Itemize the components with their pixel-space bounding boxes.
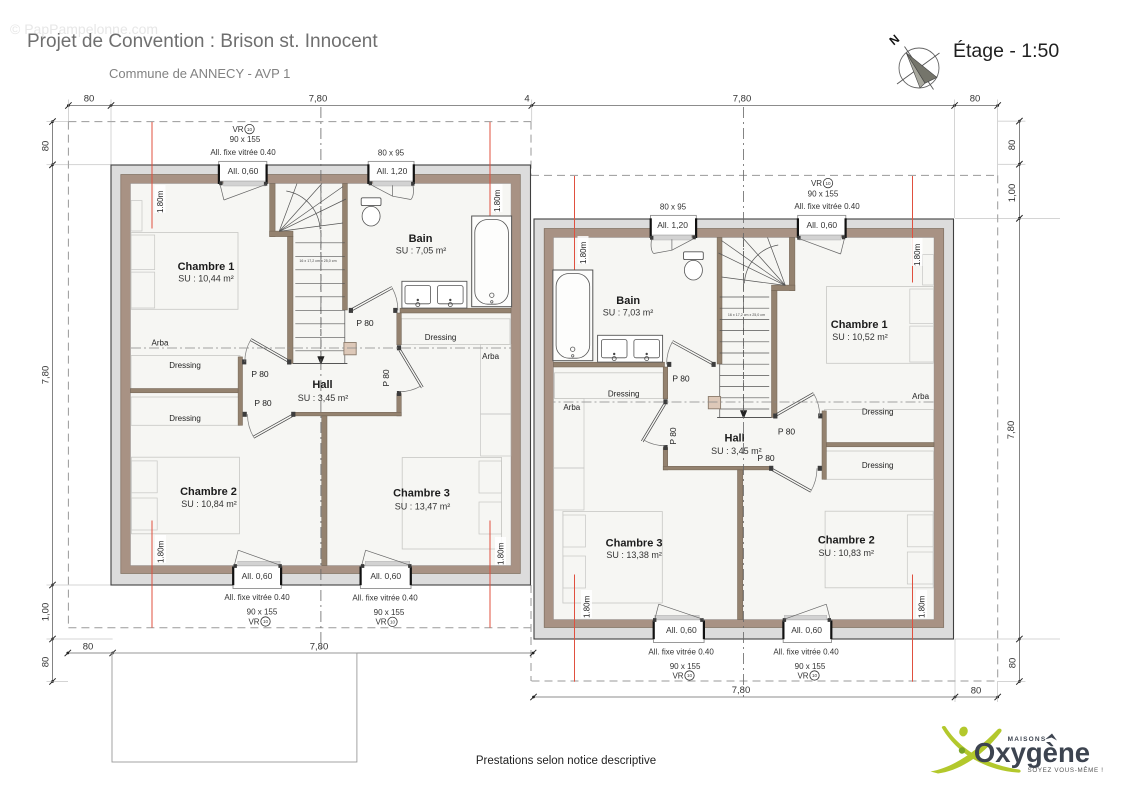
- svg-text:80: 80: [84, 94, 95, 105]
- svg-text:Étage - 1:50: Étage - 1:50: [953, 39, 1059, 62]
- svg-text:1.80m: 1.80m: [156, 190, 165, 213]
- svg-text:Chambre 3: Chambre 3: [393, 488, 450, 500]
- svg-text:All. fixe vitrée 0.40: All. fixe vitrée 0.40: [648, 648, 714, 657]
- svg-text:16 x 17,2 cm x 25,0 cm: 16 x 17,2 cm x 25,0 cm: [728, 313, 765, 317]
- svg-text:P 80: P 80: [668, 427, 678, 445]
- svg-text:P 80: P 80: [381, 369, 391, 387]
- svg-text:Arba: Arba: [152, 339, 169, 348]
- svg-text:Chambre 2: Chambre 2: [180, 486, 237, 498]
- svg-text:SU : 10,83 m²: SU : 10,83 m²: [819, 548, 875, 558]
- svg-text:Arba: Arba: [563, 403, 580, 412]
- svg-text:Oxygène: Oxygène: [974, 737, 1090, 768]
- svg-text:All. 1,20: All. 1,20: [657, 220, 688, 230]
- svg-text:SU : 10,52 m²: SU : 10,52 m²: [832, 332, 888, 342]
- svg-text:P 80: P 80: [757, 453, 775, 463]
- svg-text:All. 0,60: All. 0,60: [228, 166, 259, 176]
- svg-text:90 x 155: 90 x 155: [247, 608, 278, 617]
- svg-text:VR: VR: [248, 617, 259, 626]
- svg-text:7,80: 7,80: [1006, 421, 1017, 440]
- svg-text:7,80: 7,80: [310, 642, 329, 653]
- svg-text:80: 80: [971, 686, 982, 697]
- svg-text:Chambre 3: Chambre 3: [606, 538, 663, 550]
- svg-text:P 80: P 80: [254, 398, 272, 408]
- svg-text:P 80: P 80: [251, 369, 269, 379]
- svg-text:All. 0,60: All. 0,60: [666, 625, 697, 635]
- svg-text:Dressing: Dressing: [169, 414, 201, 423]
- svg-text:1.80m: 1.80m: [583, 595, 592, 618]
- svg-text:SU : 10,44 m²: SU : 10,44 m²: [178, 274, 234, 284]
- svg-text:16 x 17,2 cm x 25,0 cm: 16 x 17,2 cm x 25,0 cm: [299, 259, 336, 263]
- svg-text:SU : 13,47 m²: SU : 13,47 m²: [395, 502, 451, 512]
- svg-text:80 x 95: 80 x 95: [660, 203, 687, 212]
- svg-text:SOYEZ VOUS-MÊME !: SOYEZ VOUS-MÊME !: [1028, 766, 1104, 774]
- svg-text:SU : 13,38 m²: SU : 13,38 m²: [606, 550, 662, 560]
- svg-text:1.80m: 1.80m: [157, 540, 166, 563]
- svg-text:1.80m: 1.80m: [918, 595, 927, 618]
- svg-text:P 80: P 80: [356, 318, 374, 328]
- svg-text:P 80: P 80: [672, 374, 690, 384]
- svg-text:Dressing: Dressing: [862, 461, 894, 470]
- svg-text:SU : 7,05 m²: SU : 7,05 m²: [396, 246, 447, 256]
- svg-text:All. 1,20: All. 1,20: [377, 166, 408, 176]
- svg-text:VR: VR: [797, 671, 808, 680]
- svg-text:Dressing: Dressing: [862, 408, 894, 417]
- svg-text:80: 80: [41, 141, 52, 152]
- svg-text:Commune de ANNECY - AVP 1: Commune de ANNECY - AVP 1: [109, 66, 290, 81]
- svg-text:10: 10: [247, 127, 253, 132]
- svg-text:10: 10: [263, 619, 269, 624]
- svg-text:All. 0,60: All. 0,60: [806, 220, 837, 230]
- svg-text:10: 10: [687, 673, 693, 678]
- svg-text:80: 80: [970, 94, 981, 105]
- svg-text:VR: VR: [375, 618, 386, 627]
- svg-text:80: 80: [41, 657, 52, 668]
- svg-text:10: 10: [812, 673, 818, 678]
- svg-text:SU : 3,45 m²: SU : 3,45 m²: [298, 393, 349, 403]
- svg-text:80: 80: [83, 642, 94, 653]
- svg-text:All. 0,60: All. 0,60: [370, 571, 401, 581]
- svg-text:4: 4: [524, 94, 529, 105]
- svg-text:Chambre 1: Chambre 1: [831, 319, 888, 331]
- svg-text:Dressing: Dressing: [425, 333, 457, 342]
- svg-text:90 x 155: 90 x 155: [670, 662, 701, 671]
- svg-text:All. fixe vitrée 0.40: All. fixe vitrée 0.40: [352, 594, 418, 603]
- svg-text:SU : 3,45 m²: SU : 3,45 m²: [711, 446, 762, 456]
- svg-text:Hall: Hall: [312, 379, 332, 391]
- svg-text:All. 0,60: All. 0,60: [242, 571, 273, 581]
- svg-text:80: 80: [1008, 658, 1019, 669]
- svg-text:10: 10: [825, 181, 831, 186]
- svg-text:1.80m: 1.80m: [913, 243, 922, 266]
- svg-text:7,80: 7,80: [309, 94, 328, 105]
- svg-text:80: 80: [1007, 140, 1018, 151]
- svg-text:1,00: 1,00: [41, 603, 52, 622]
- svg-text:Hall: Hall: [725, 433, 745, 445]
- svg-text:All. fixe vitrée 0.40: All. fixe vitrée 0.40: [794, 202, 860, 211]
- svg-text:All. fixe vitrée 0.40: All. fixe vitrée 0.40: [773, 648, 839, 657]
- svg-text:90 x 155: 90 x 155: [230, 135, 261, 144]
- svg-text:VR: VR: [811, 179, 822, 188]
- svg-text:90 x 155: 90 x 155: [808, 190, 839, 199]
- svg-text:All. fixe vitrée 0.40: All. fixe vitrée 0.40: [224, 593, 290, 602]
- svg-text:Chambre 2: Chambre 2: [818, 535, 875, 547]
- svg-text:7,80: 7,80: [732, 685, 751, 696]
- svg-text:SU : 10,84 m²: SU : 10,84 m²: [181, 499, 237, 509]
- svg-text:SU : 7,03 m²: SU : 7,03 m²: [603, 308, 654, 318]
- svg-text:P 80: P 80: [778, 427, 796, 437]
- svg-text:Chambre 1: Chambre 1: [178, 261, 235, 273]
- svg-text:90 x 155: 90 x 155: [374, 608, 405, 617]
- svg-text:90 x 155: 90 x 155: [795, 662, 826, 671]
- svg-text:80 x 95: 80 x 95: [378, 149, 405, 158]
- svg-text:1.80m: 1.80m: [497, 542, 506, 565]
- svg-text:Dressing: Dressing: [169, 361, 201, 370]
- svg-text:10: 10: [390, 620, 396, 625]
- svg-text:Projet de Convention : Brison: Projet de Convention : Brison st. Innoce…: [27, 31, 378, 52]
- svg-text:Arba: Arba: [912, 392, 929, 401]
- svg-text:Bain: Bain: [616, 295, 640, 307]
- svg-text:Dressing: Dressing: [608, 390, 640, 399]
- svg-text:All. 0,60: All. 0,60: [791, 625, 822, 635]
- svg-text:VR: VR: [232, 125, 243, 134]
- svg-text:1.80m: 1.80m: [579, 241, 588, 264]
- svg-text:1.80m: 1.80m: [493, 189, 502, 212]
- svg-text:All. fixe vitrée 0.40: All. fixe vitrée 0.40: [210, 148, 276, 157]
- svg-text:7,80: 7,80: [41, 366, 52, 385]
- svg-text:VR: VR: [672, 671, 683, 680]
- svg-text:Arba: Arba: [482, 352, 499, 361]
- svg-text:Prestations selon notice descr: Prestations selon notice descriptive: [476, 755, 656, 767]
- svg-text:7,80: 7,80: [733, 94, 752, 105]
- svg-text:1,00: 1,00: [1007, 184, 1018, 203]
- svg-text:Bain: Bain: [409, 233, 433, 245]
